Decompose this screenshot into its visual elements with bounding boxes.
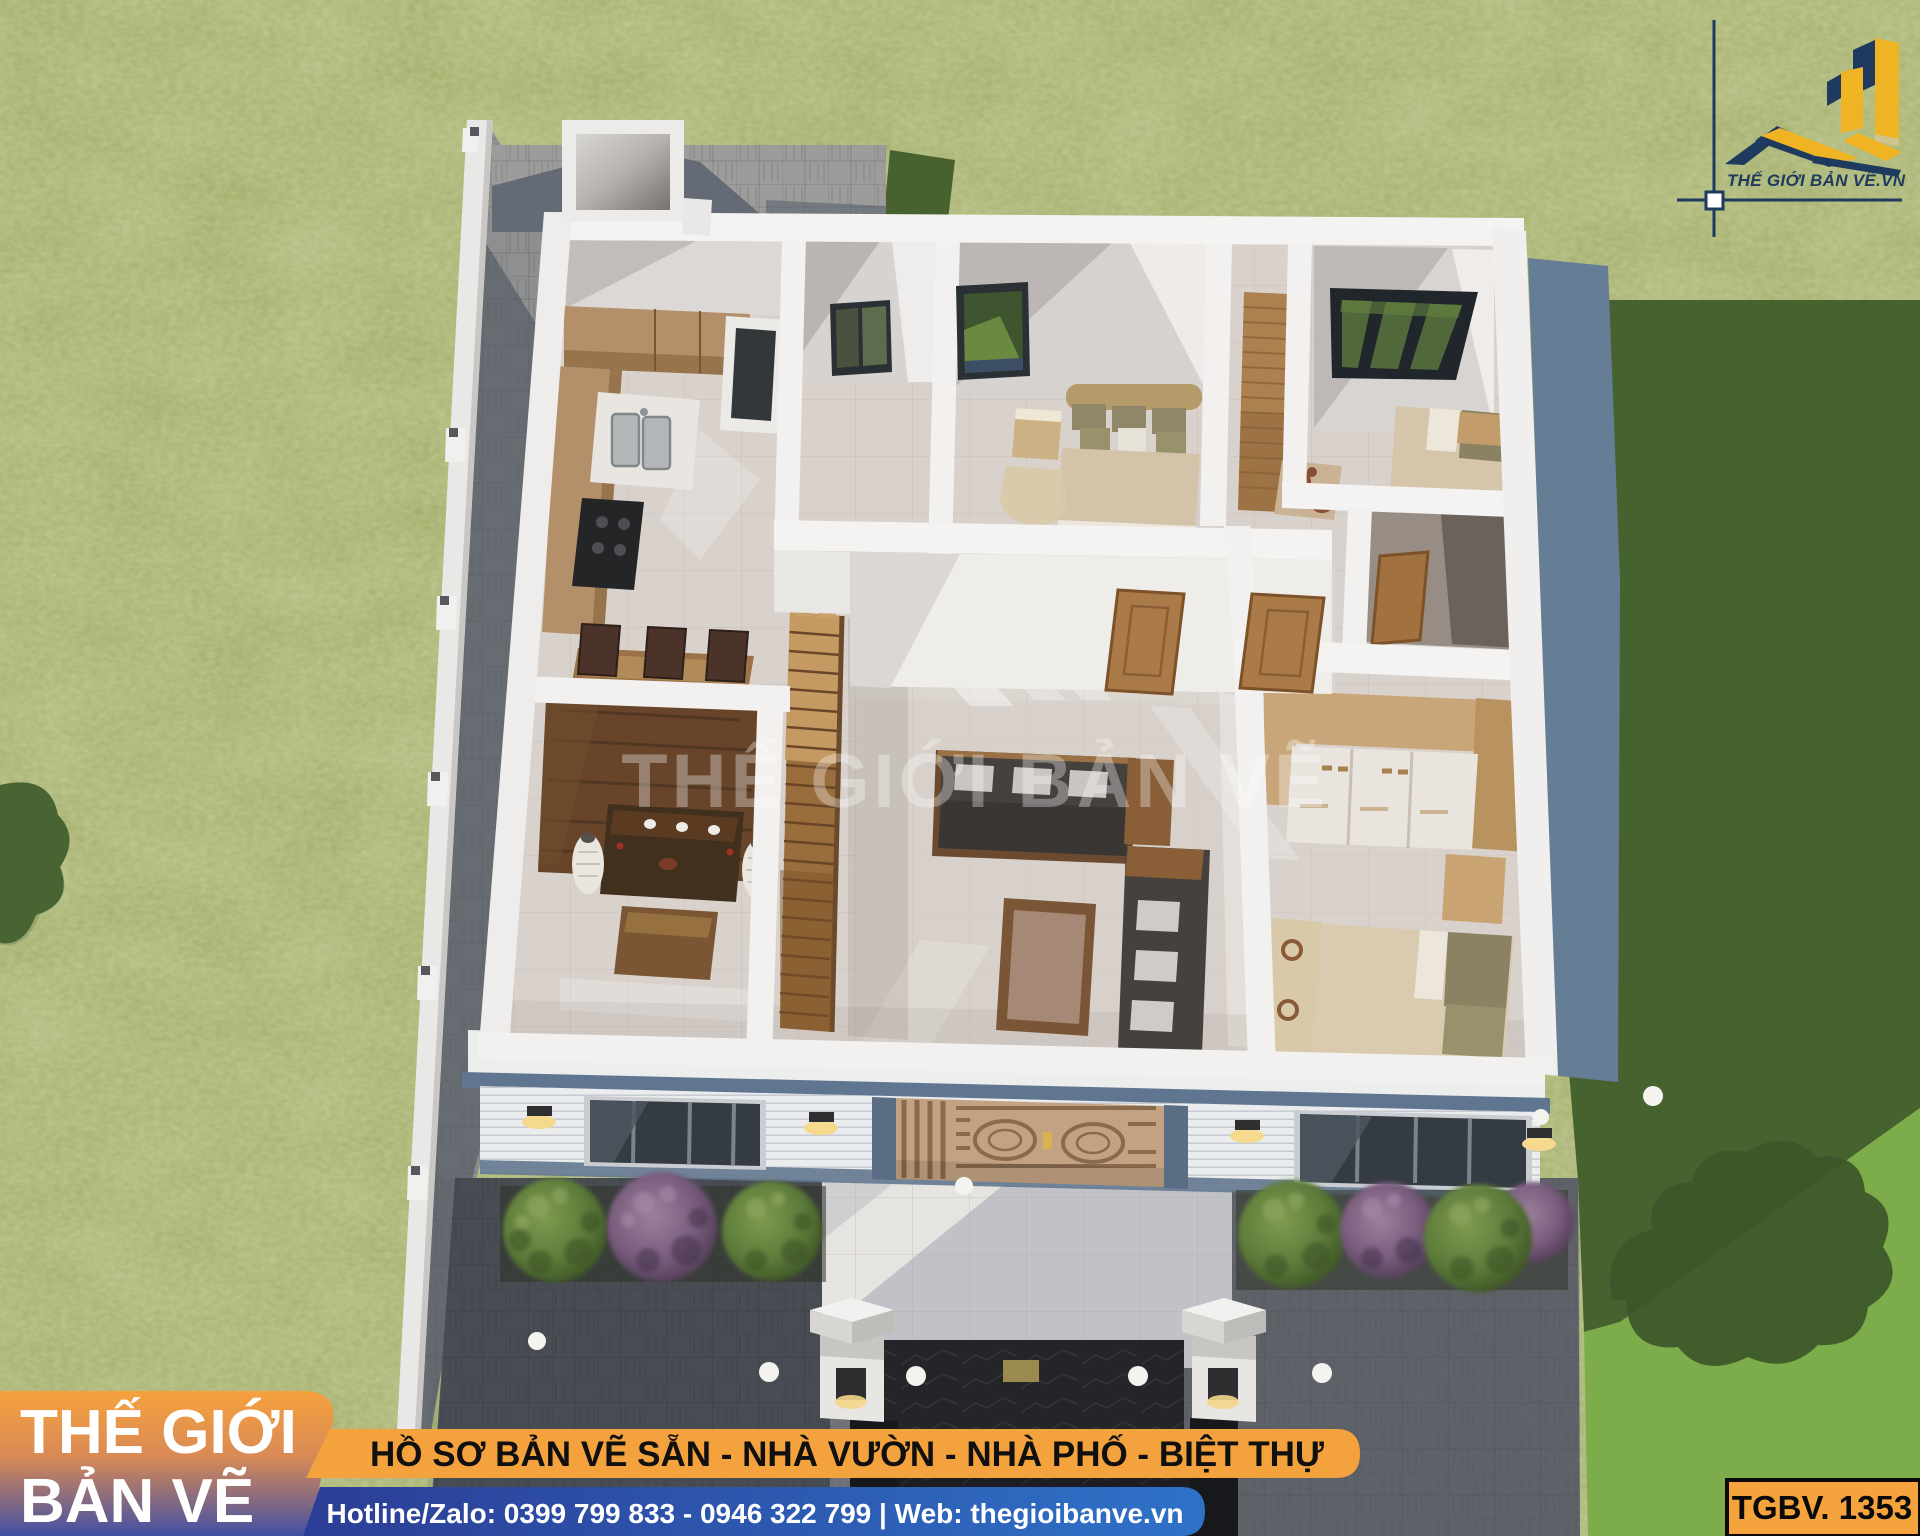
svg-text:THẾ GIỚI BẢN VẼ.VN: THẾ GIỚI BẢN VẼ.VN: [1727, 170, 1906, 190]
svg-text:Hotline/Zalo: 0399 799 833 - 0: Hotline/Zalo: 0399 799 833 - 0946 322 79…: [326, 1498, 1183, 1529]
svg-text:HỒ SƠ BẢN VẼ SẴN - NHÀ VƯỜN -: HỒ SƠ BẢN VẼ SẴN - NHÀ VƯỜN - NHÀ PHỐ - …: [370, 1434, 1325, 1474]
svg-text:THẾ GIỚI BẢN VẼ: THẾ GIỚI BẢN VẼ: [621, 739, 1329, 824]
svg-text:TGBV. 1353: TGBV. 1353: [1732, 1489, 1912, 1526]
svg-text:BẢN VẼ: BẢN VẼ: [20, 1467, 254, 1536]
svg-text:THẾ GIỚI: THẾ GIỚI: [20, 1398, 297, 1467]
